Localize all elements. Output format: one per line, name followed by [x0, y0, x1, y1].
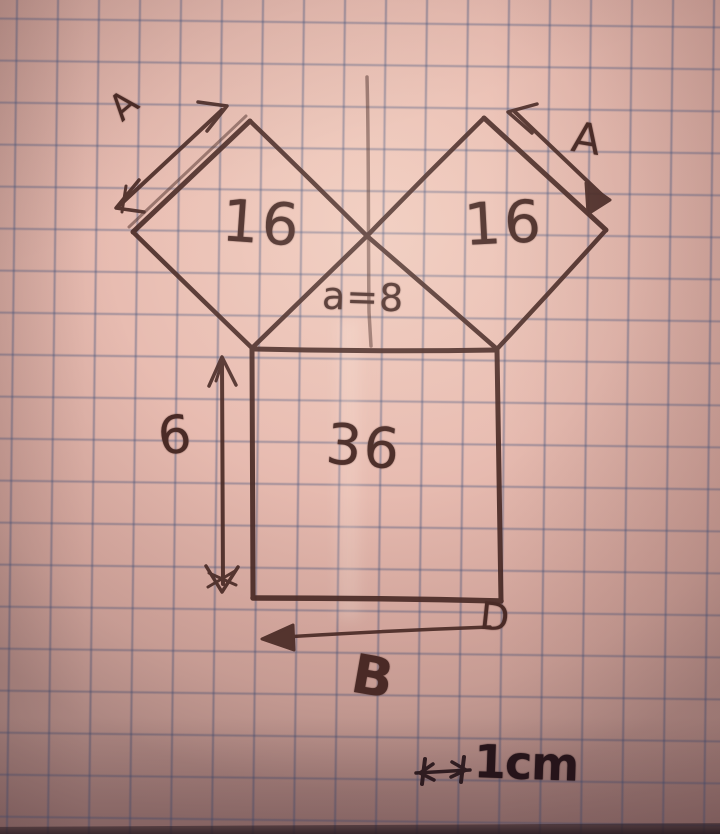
photo-of-squared-paper: A A 16 16 a=8 36 6 B D 1cm: [0, 0, 720, 834]
photo-vignette: [0, 0, 720, 834]
